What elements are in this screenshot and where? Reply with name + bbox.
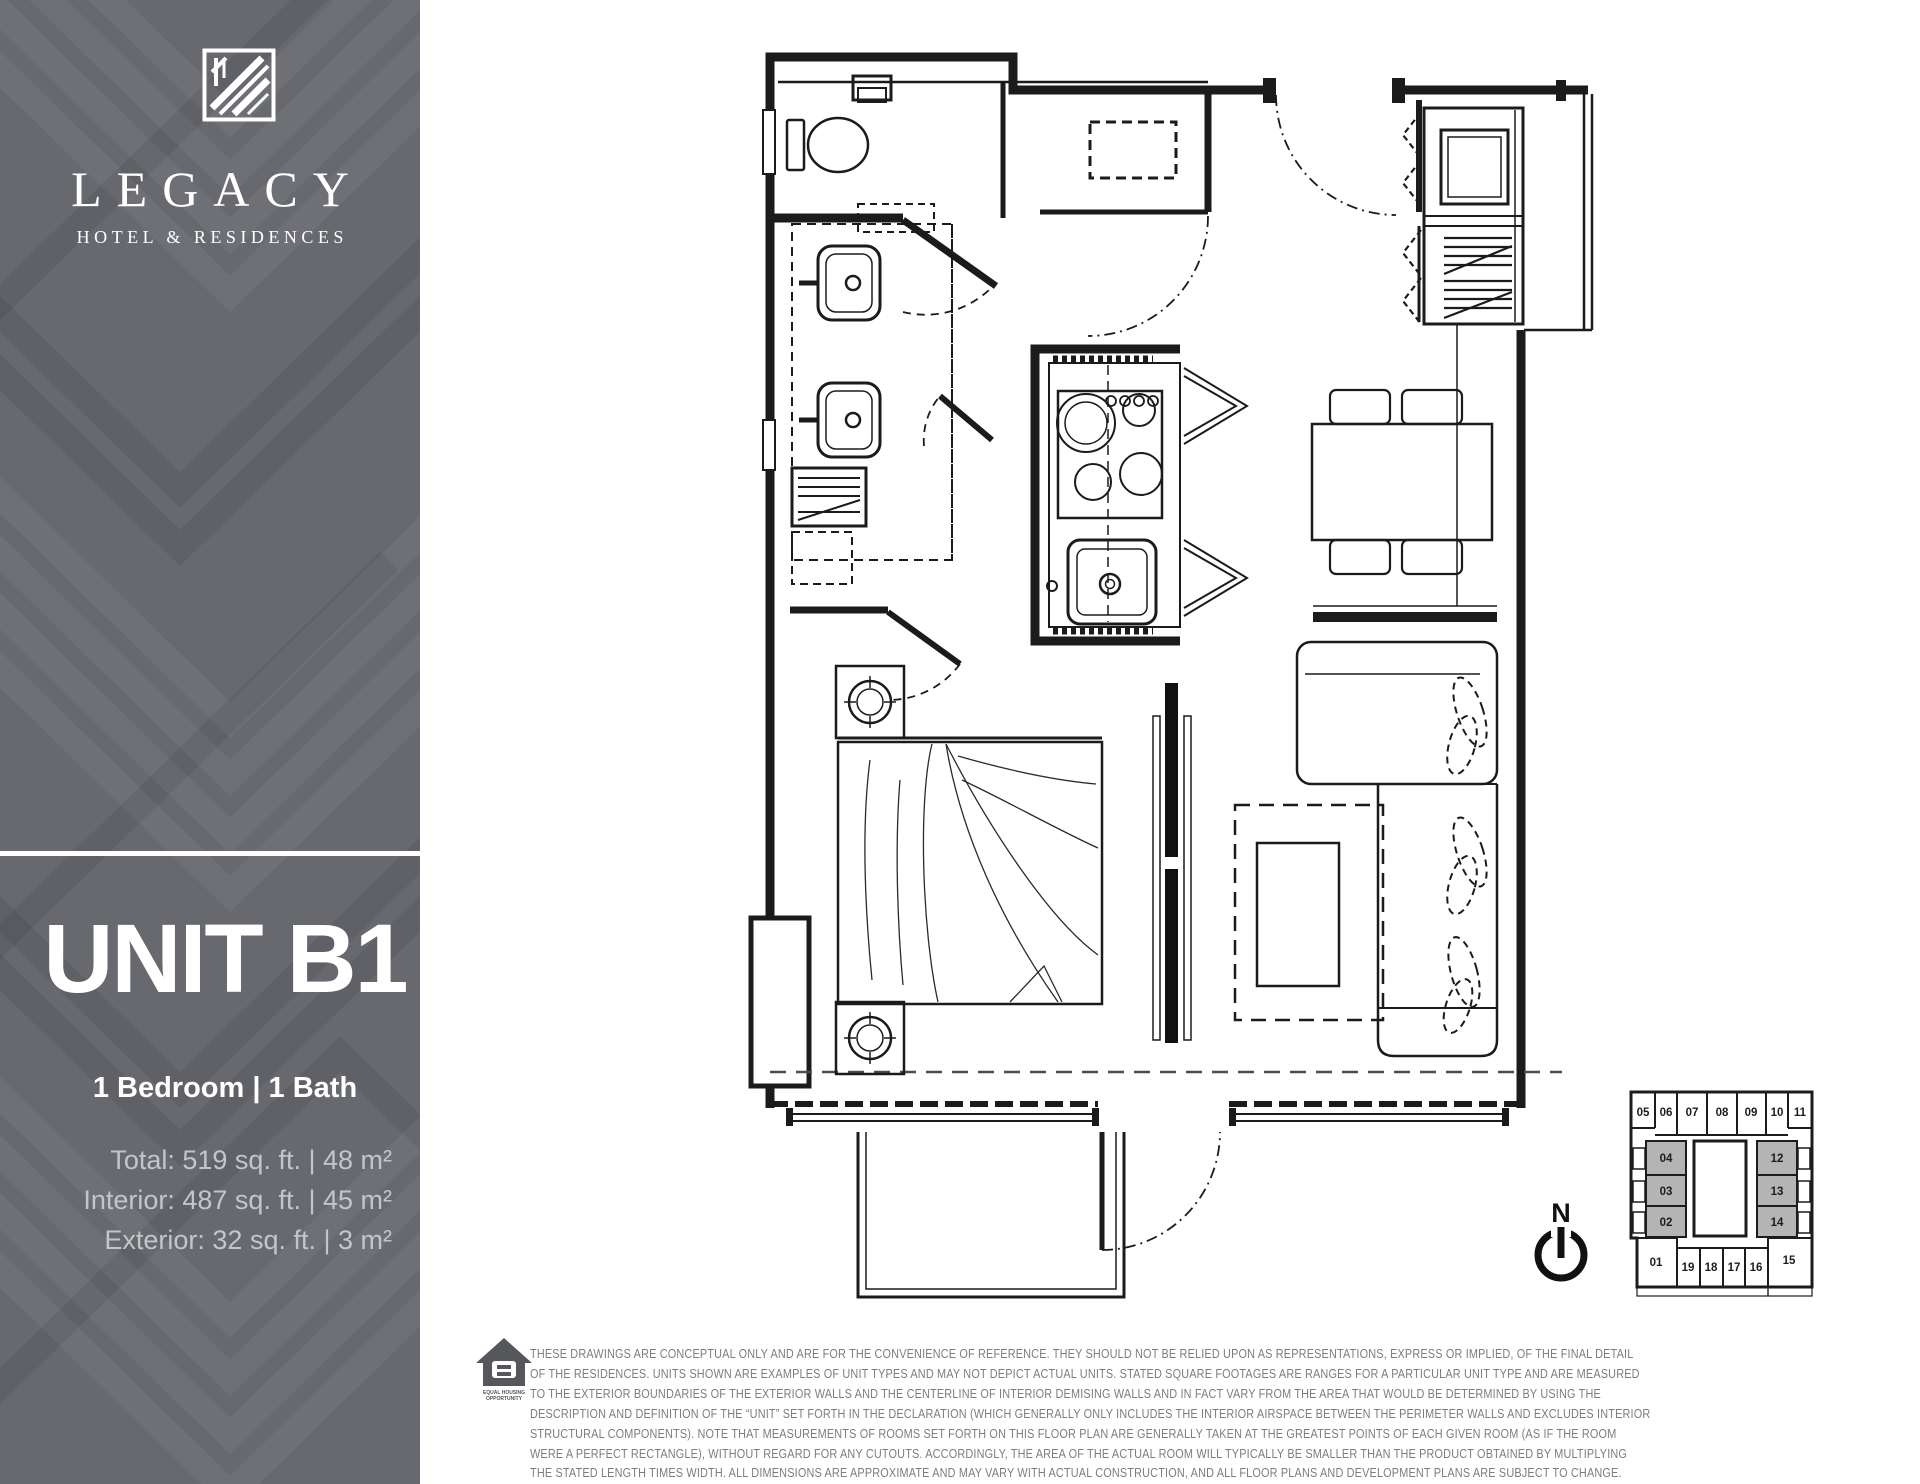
bed-icon [838,738,1102,1004]
dining-table [1312,390,1497,622]
disclaimer-line: THE STATED LENGTH TIMES WIDTH. ALL DIMEN… [530,1463,1295,1483]
unit-label: 07 [1686,1107,1699,1119]
building-core [1694,1141,1746,1236]
unit-label: 09 [1745,1107,1758,1119]
disclaimer-line: STRUCTURAL COMPONENTS). NOTE THAT MEASUR… [530,1424,1295,1444]
vanity-sinks [792,224,992,584]
kitchen-sink-icon [1047,540,1156,624]
unit-stats: Total: 519 sq. ft. | 48 m² Interior: 487… [40,1140,392,1260]
unit-label: 16 [1750,1262,1763,1274]
geometric-pattern [0,0,420,1484]
bedroom-door [888,612,960,664]
stat-interior: Interior: 487 sq. ft. | 45 m² [40,1180,392,1220]
entry-closet [1040,90,1208,336]
north-arrow-icon: N [1538,1198,1584,1278]
coffee-table [1257,843,1339,986]
floorplan-brochure-page: { "sidebar": { "bg_color": "#67696f", "b… [0,0,1920,1484]
unit-label: 03 [1660,1186,1673,1198]
entry-door-swing [1276,95,1396,215]
shelving-icon [1444,238,1512,318]
legacy-monogram-icon [202,48,276,122]
bathroom-door [903,220,996,286]
eho-text: OPPORTUNITY [486,1396,523,1402]
north-label: N [1551,1198,1571,1228]
stat-exterior: Exterior: 32 sq. ft. | 3 m² [40,1220,392,1260]
bathroom [770,76,1208,315]
disclaimer-line: DESCRIPTION AND DEFINITION OF THE “UNIT”… [530,1404,1295,1424]
linen-closet [792,468,866,584]
unit-label: 12 [1771,1153,1784,1165]
unit-label: 19 [1682,1262,1695,1274]
sink-icon [799,246,880,320]
nightstand-icon [836,1002,904,1074]
unit-title: UNIT B1 [40,903,410,1015]
unit-label: 13 [1771,1186,1784,1198]
unit-label: 05 [1637,1107,1650,1119]
unit-label: 18 [1705,1262,1718,1274]
kitchen-island [1035,349,1247,641]
unit-label: 15 [1783,1255,1796,1267]
unit-label: 11 [1794,1107,1807,1119]
bedroom [790,610,1102,1074]
cooktop-icon [1057,391,1162,518]
unit-label: 02 [1660,1217,1673,1229]
unit-label: 01 [1650,1257,1663,1269]
nightstand-icon [836,666,904,738]
unit-label: 10 [1771,1107,1784,1119]
brand-name: LEGACY [0,160,420,218]
disclaimer: THESE DRAWINGS ARE CONCEPTUAL ONLY AND A… [530,1344,1430,1483]
unit-label: 08 [1716,1107,1729,1119]
sink-icon [799,383,880,457]
sidebar: LEGACY HOTEL & RESIDENCES UNIT B1 1 Bedr… [0,0,420,1484]
washer-dryer-icon [1441,130,1508,204]
sliding-partition [1153,683,1191,1043]
key-plan: 05 06 07 08 09 10 11 04 03 02 12 13 14 0… [1631,1092,1812,1296]
disclaimer-line: THESE DRAWINGS ARE CONCEPTUAL ONLY AND A… [530,1344,1295,1364]
cabinet-door-swings [1184,368,1247,616]
unit-config: 1 Bedroom | 1 Bath [40,1072,410,1105]
unit-label: 04 [1660,1153,1673,1165]
equal-housing-icon: EQUAL HOUSING OPPORTUNITY [476,1338,532,1402]
brand-tagline: HOTEL & RESIDENCES [0,227,420,248]
throw-pillows [1438,674,1494,1037]
exhaust-fan-icon [853,76,891,102]
stat-total: Total: 519 sq. ft. | 48 m² [40,1140,392,1180]
disclaimer-line: OF THE RESIDENCES. UNITS SHOWN ARE EXAMP… [530,1364,1295,1384]
laundry-closet [1403,100,1523,606]
floor-plan-drawing: 05 06 07 08 09 10 11 04 03 02 12 13 14 0… [420,0,1920,1484]
vanity-door [940,396,992,440]
balcony [858,1132,1220,1297]
disclaimer-line: TO THE EXTERIOR BOUNDARIES OF THE EXTERI… [530,1384,1295,1404]
unit-label: 17 [1728,1262,1741,1274]
unit-label: 06 [1660,1107,1673,1119]
disclaimer-line: WERE A PERFECT RECTANGLE), WITHOUT REGAR… [530,1444,1295,1464]
sidebar-divider [0,851,420,856]
toilet-icon [787,118,868,172]
window-wall [770,1072,1562,1126]
unit-label: 14 [1771,1217,1784,1229]
